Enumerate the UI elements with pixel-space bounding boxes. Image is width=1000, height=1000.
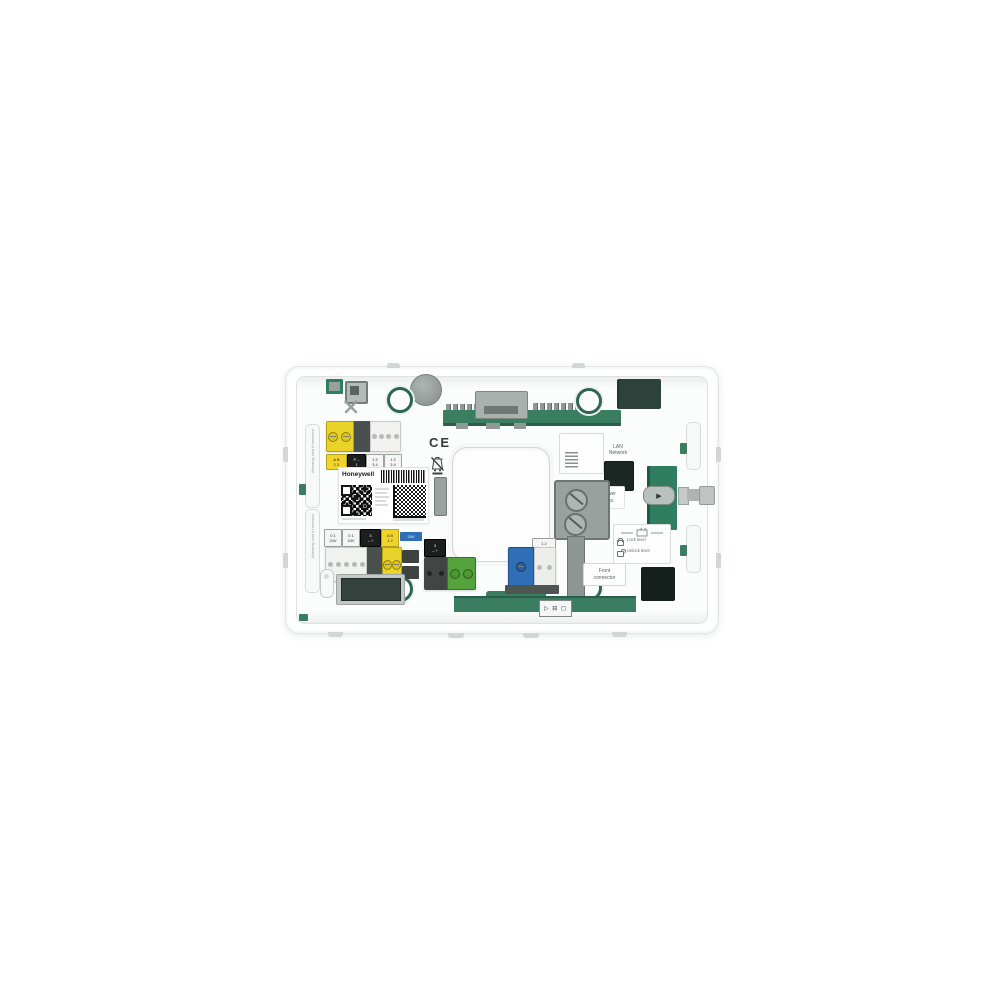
label-text-line bbox=[375, 492, 387, 494]
release-slot bbox=[320, 569, 334, 598]
warranty-strip-text: Warranty void if removed bbox=[310, 429, 315, 473]
display-window-frame bbox=[336, 574, 405, 605]
strip-tab bbox=[486, 423, 500, 429]
terminal-screw bbox=[372, 434, 377, 439]
terminal-base bbox=[505, 585, 559, 594]
terminal-screw bbox=[386, 434, 391, 439]
crossed-tools-icon bbox=[343, 399, 359, 415]
terminal-screw bbox=[336, 562, 341, 567]
side-clip bbox=[283, 447, 288, 462]
vent-grill-icon bbox=[565, 452, 578, 468]
terminal-screw bbox=[392, 560, 401, 570]
connector-diagram-icon bbox=[617, 527, 667, 537]
pcb-edge-mark bbox=[680, 545, 687, 556]
terminal-screw bbox=[328, 562, 333, 567]
terminal-screw bbox=[379, 434, 384, 439]
rail-slot bbox=[686, 422, 701, 470]
brand-logo-text: Honeywell bbox=[342, 471, 374, 478]
lock-closed-icon bbox=[617, 540, 624, 546]
terminal-white-section bbox=[534, 547, 556, 587]
alignment-symbols: ▷ ⊟ ◻ bbox=[544, 605, 567, 612]
green-terminal-block bbox=[424, 557, 476, 590]
display-window bbox=[341, 578, 401, 601]
metal-contact bbox=[687, 489, 699, 501]
front-connector-line2: connector bbox=[584, 575, 625, 581]
dark-module-block bbox=[617, 379, 661, 409]
power-terminal-block bbox=[554, 480, 610, 540]
lock-legend-box: Lock level Unlock level bbox=[613, 524, 671, 564]
warranty-strip: Warranty void if removed bbox=[305, 424, 320, 508]
terminal-screw bbox=[341, 432, 351, 442]
bottom-mount-tab bbox=[448, 633, 464, 638]
terminal-blue-section bbox=[508, 547, 534, 587]
sticker-line: – + bbox=[432, 548, 438, 553]
terminal-sticker: 0 1 24V bbox=[324, 529, 342, 547]
lan-port-label: LAN Network bbox=[600, 444, 636, 457]
terminal-screw bbox=[383, 560, 392, 570]
terminal-screw bbox=[360, 562, 365, 567]
module-box bbox=[559, 433, 604, 474]
strip-tab bbox=[456, 423, 468, 429]
arrow-right-icon: ▶ bbox=[656, 492, 661, 500]
bottom-mount-tab bbox=[612, 632, 627, 637]
blue-mini-label: 24V bbox=[400, 532, 422, 541]
label-text-line bbox=[342, 518, 366, 520]
sticker-line: 24V bbox=[347, 538, 354, 543]
terminal-screw bbox=[344, 562, 349, 567]
lock-open-icon bbox=[617, 551, 624, 557]
label-text-line bbox=[375, 504, 388, 506]
sticker-line: 24V bbox=[329, 538, 336, 543]
warranty-strip-text: Warranty void if removed bbox=[310, 514, 315, 558]
terminal-screw bbox=[439, 571, 444, 576]
front-connector-label: Front connector bbox=[583, 563, 626, 586]
qr-code bbox=[341, 485, 372, 516]
terminal-green-section bbox=[447, 557, 476, 590]
metal-contact bbox=[699, 486, 715, 505]
weee-bin-icon bbox=[430, 455, 445, 475]
terminal-screw bbox=[547, 565, 552, 570]
terminal-sticker: 0 1 24V bbox=[342, 529, 360, 547]
photo-background: Warranty void if removed Warranty void i… bbox=[0, 0, 1000, 1000]
terminal-screw bbox=[328, 432, 338, 442]
strip-tab bbox=[514, 423, 526, 429]
terminal-screw bbox=[427, 571, 432, 576]
ce-mark: CE bbox=[429, 435, 451, 450]
sticker-line: – + bbox=[368, 538, 374, 543]
pcb-edge-mark bbox=[680, 443, 687, 454]
label-text-line bbox=[393, 518, 424, 521]
chip-icon bbox=[329, 382, 340, 391]
side-clip bbox=[283, 553, 288, 568]
legend-unlock-text: Unlock level bbox=[627, 548, 650, 553]
bottom-mount-tab bbox=[523, 633, 539, 638]
terminal-sticker: A B 1 2 bbox=[381, 529, 399, 547]
data-matrix-code bbox=[393, 485, 426, 518]
mini-connector bbox=[402, 550, 419, 563]
plug-connector: ▶ bbox=[643, 486, 675, 505]
cable-hole bbox=[410, 374, 442, 406]
terminal-screw bbox=[450, 569, 460, 579]
rail-slot bbox=[686, 525, 701, 573]
terminal-yellow-section bbox=[326, 421, 354, 452]
top-mount-tab bbox=[387, 363, 400, 368]
side-clip bbox=[716, 447, 721, 462]
terminal-screw bbox=[537, 565, 542, 570]
terminal-block-top-left bbox=[326, 421, 401, 452]
terminal-dark-section bbox=[354, 421, 370, 452]
screw-hole bbox=[576, 388, 602, 414]
blue-mini-label-text: 24V bbox=[407, 534, 414, 539]
alignment-symbols-label: ▷ ⊟ ◻ bbox=[539, 600, 572, 617]
terminal-sticker: 3 – + bbox=[360, 529, 381, 547]
terminal-white-section bbox=[370, 421, 401, 452]
dark-port-block bbox=[641, 567, 675, 601]
terminal-screw bbox=[352, 562, 357, 567]
slot-dot bbox=[324, 574, 329, 579]
legend-lock-row: Lock level bbox=[616, 537, 668, 546]
vertical-slot bbox=[434, 477, 447, 516]
screw-hole bbox=[387, 387, 413, 413]
socket-opening bbox=[350, 386, 359, 395]
sticker-line: 1 2 bbox=[387, 538, 393, 543]
top-mount-tab bbox=[572, 363, 585, 368]
pcb-chip-module bbox=[326, 379, 343, 394]
warranty-strip: Warranty void if removed bbox=[305, 509, 320, 593]
product-label: Honeywell bbox=[338, 467, 429, 524]
blue-terminal-block bbox=[508, 547, 556, 587]
terminal-screw-large bbox=[564, 513, 587, 536]
pcb-edge-mark bbox=[299, 614, 308, 621]
main-connector-block bbox=[475, 391, 528, 419]
label-text-line bbox=[375, 496, 389, 498]
sticker-line: 1 2 bbox=[541, 541, 547, 546]
legend-unlock-row: Unlock level bbox=[616, 548, 668, 557]
terminal-sticker: 3 – + bbox=[424, 539, 446, 557]
side-clip bbox=[716, 553, 721, 568]
terminal-dark-section bbox=[424, 557, 447, 590]
barcode bbox=[381, 470, 425, 483]
label-text-line bbox=[375, 488, 389, 490]
terminal-screw bbox=[394, 434, 399, 439]
terminal-screw bbox=[516, 562, 526, 572]
terminal-screw bbox=[463, 569, 473, 579]
bottom-mount-tab bbox=[328, 632, 343, 637]
terminal-screw-large bbox=[565, 489, 588, 512]
pcb-edge-mark bbox=[299, 484, 306, 495]
lan-label-line2: Network bbox=[600, 450, 636, 456]
backplate-case: Warranty void if removed Warranty void i… bbox=[285, 366, 719, 634]
label-text-line bbox=[375, 500, 386, 502]
connector-slot bbox=[484, 406, 518, 414]
legend-lock-text: Lock level bbox=[627, 537, 646, 542]
